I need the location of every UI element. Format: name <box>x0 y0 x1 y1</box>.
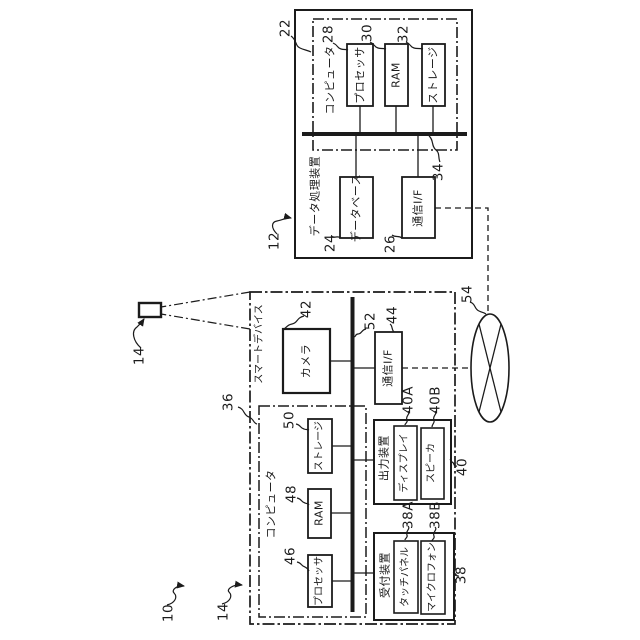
sd-commif-label: 通信I/F <box>383 349 394 387</box>
subject-rect <box>139 303 161 317</box>
fov-line-2 <box>161 314 250 329</box>
patent-figure: データ処理装置 12 コンピュータ 22 プロセッサ 28 RAM 30 ストレ… <box>0 0 640 640</box>
sd-input-label: 受付装置 <box>380 552 391 598</box>
dpd-computer-label: コンピュータ <box>325 46 336 115</box>
sd-touchpanel-ref: 38A <box>402 501 416 529</box>
sd-input-ref: 38 <box>455 566 469 584</box>
sd-speaker-label: スピーカ <box>427 443 437 483</box>
dpd-commif-label: 通信I/F <box>413 189 424 227</box>
diagram-lines <box>0 0 640 640</box>
sd-touchpanel-label: タッチパネル <box>401 547 411 607</box>
arrow-10 <box>167 586 184 605</box>
dpd-bus-ref: 34 <box>432 163 446 181</box>
sd-speaker-ref: 40B <box>429 386 443 414</box>
dpd-commif-ref: 26 <box>384 235 398 253</box>
sd-computer-ref: 36 <box>222 393 236 411</box>
sd-ram-ref: 48 <box>285 485 299 503</box>
sd-camera-ref: 42 <box>300 300 314 318</box>
sd-display-label: ディスプレイ <box>400 433 410 492</box>
leader-34 <box>429 136 440 162</box>
network-ref: 54 <box>461 285 475 303</box>
leader-52 <box>354 329 366 337</box>
dpd-computer-ref: 22 <box>279 19 293 37</box>
dpd-storage-ref: 32 <box>397 25 411 43</box>
sd-processor-ref: 46 <box>284 547 298 565</box>
sd-microphone-label: マイクロフォン <box>428 542 438 612</box>
sd-storage-ref: 50 <box>283 411 297 429</box>
dpd-label: データ処理装置 <box>310 156 321 237</box>
sd-computer-label: コンピュータ <box>266 470 277 539</box>
dpd-database-ref: 24 <box>324 234 338 252</box>
fov-line-1 <box>161 292 250 307</box>
leader-54 <box>470 302 486 314</box>
sd-output-ref: 40 <box>456 458 470 476</box>
dpd-database-label: データベース <box>351 174 362 242</box>
sd-display-ref: 40A <box>402 386 416 414</box>
dpd-ref: 12 <box>268 232 282 250</box>
sd-bus-ref: 52 <box>364 312 378 330</box>
sd-storage-label: ストレージ <box>315 421 325 471</box>
leader-36 <box>238 407 257 424</box>
sd-microphone-ref: 38B <box>429 501 443 529</box>
dpd-processor-label: プロセッサ <box>355 46 366 104</box>
leader-44 <box>390 324 394 332</box>
sd-commif-ref: 44 <box>386 306 400 324</box>
dpd-ram-ref: 30 <box>361 24 375 42</box>
arrow-14-subject <box>134 319 144 348</box>
sd-label: スマートデバイス <box>255 304 265 383</box>
dpd-storage-label: ストレージ <box>428 46 439 103</box>
arrow-14-device <box>222 585 242 604</box>
dpd-processor-ref: 28 <box>322 25 336 43</box>
leader-50 <box>296 424 309 430</box>
sd-camera-label: カメラ <box>301 344 312 379</box>
sd-processor-label: プロセッサ <box>315 556 325 606</box>
sd-ref: 14 <box>217 603 231 621</box>
sd-output-label: 出力装置 <box>379 435 390 481</box>
dpd-ram-label: RAM <box>391 62 402 88</box>
system-ref: 10 <box>162 604 176 622</box>
subject-ref: 14 <box>133 347 147 365</box>
sd-ram-label: RAM <box>314 500 325 526</box>
